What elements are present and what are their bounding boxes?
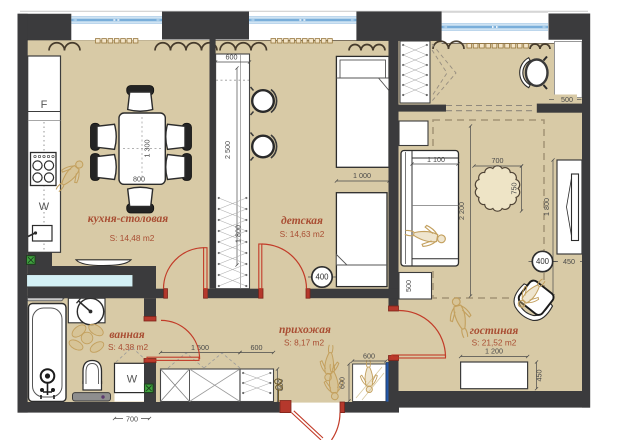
- svg-text:800: 800: [133, 175, 145, 184]
- svg-text:1 300: 1 300: [143, 140, 152, 158]
- svg-text:1 200: 1 200: [485, 347, 503, 356]
- svg-text:400: 400: [315, 273, 329, 282]
- svg-text:1 000: 1 000: [353, 171, 371, 180]
- svg-text:кухня-столовая: кухня-столовая: [88, 213, 168, 225]
- svg-text:1 800: 1 800: [542, 198, 551, 216]
- svg-text:F: F: [41, 99, 48, 111]
- svg-text:W: W: [127, 374, 138, 386]
- svg-text:700: 700: [126, 414, 138, 423]
- svg-text:600: 600: [338, 377, 347, 389]
- svg-text:600: 600: [226, 53, 238, 62]
- svg-text:ванная: ванная: [109, 329, 144, 341]
- svg-text:2 500: 2 500: [223, 141, 232, 159]
- svg-text:S: 8,17 m2: S: 8,17 m2: [284, 338, 325, 348]
- svg-text:1 500: 1 500: [191, 343, 209, 352]
- svg-text:450: 450: [563, 257, 575, 266]
- svg-text:гостиная: гостиная: [470, 325, 519, 337]
- svg-text:W: W: [39, 201, 50, 213]
- svg-text:S: 14,63 m2: S: 14,63 m2: [280, 229, 325, 239]
- svg-text:500: 500: [561, 95, 573, 104]
- svg-text:1 800: 1 800: [234, 225, 243, 243]
- svg-text:450: 450: [535, 370, 544, 382]
- svg-text:детская: детская: [281, 215, 323, 227]
- svg-text:2 200: 2 200: [457, 202, 466, 220]
- svg-text:750: 750: [510, 183, 519, 195]
- svg-text:прихожая: прихожая: [279, 324, 331, 336]
- svg-text:600: 600: [251, 343, 263, 352]
- svg-text:S: 14,48 m2: S: 14,48 m2: [110, 233, 155, 243]
- svg-text:700: 700: [492, 156, 504, 165]
- svg-text:500: 500: [404, 280, 413, 292]
- svg-text:400: 400: [536, 257, 550, 266]
- svg-text:1 100: 1 100: [427, 155, 445, 164]
- svg-text:600: 600: [363, 352, 375, 361]
